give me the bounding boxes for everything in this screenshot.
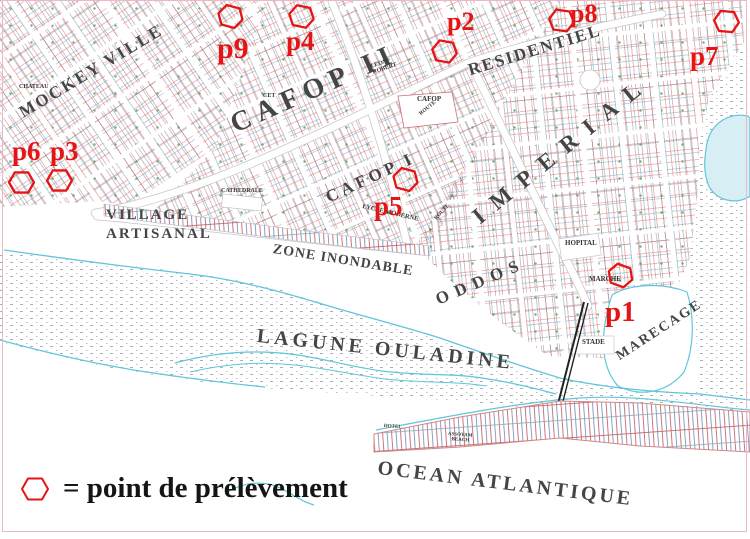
place-label-cathedrale: CATHEDRALE — [221, 188, 263, 194]
place-label-assoyam-beach: ASSOYAM BEACH — [447, 432, 472, 444]
village-line2: ARTISANAL — [106, 227, 212, 243]
place-label-hopital: HOPITAL — [565, 240, 597, 247]
legend: = point de prélèvement — [20, 472, 348, 505]
sample-point-label: p7 — [690, 43, 719, 70]
place-label-chateau: CHATEAU — [19, 84, 49, 90]
sample-point-label: p6 — [12, 138, 41, 165]
sample-point-label: p8 — [570, 1, 597, 27]
sample-point-label: p1 — [605, 298, 636, 327]
legend-hexagon-icon — [20, 477, 50, 501]
beach-line2: BEACH — [451, 438, 472, 445]
sample-point-label: p3 — [50, 138, 79, 165]
sample-point-label: p2 — [447, 9, 474, 35]
sample-point-label: p4 — [286, 28, 315, 55]
area-label-village-artisanal: VILLAGE ARTISANAL — [106, 208, 212, 243]
hexagon-marker-icon — [429, 38, 460, 65]
sample-point-label: p9 — [217, 34, 249, 64]
hexagon-marker-icon — [712, 9, 741, 34]
hexagon-marker-icon — [8, 171, 35, 194]
sample-point-label: p5 — [374, 193, 403, 220]
legend-text: = point de prélèvement — [63, 472, 348, 505]
place-label-stade: STADE — [582, 339, 605, 346]
city-map: MOCKEY VILLE CAFOP II RESIDENTIEL IMPERI… — [0, 0, 750, 539]
place-label-hotel: HOTEL — [384, 424, 402, 430]
area-label-ocean-atlantique: OCEAN ATLANTIQUE — [376, 458, 634, 510]
hexagon-marker-icon — [46, 169, 73, 192]
village-line1: VILLAGE — [106, 208, 212, 224]
place-label-cet: CET — [263, 93, 275, 99]
area-label-lagune-ouladine: LAGUNE OULADINE — [256, 326, 515, 374]
